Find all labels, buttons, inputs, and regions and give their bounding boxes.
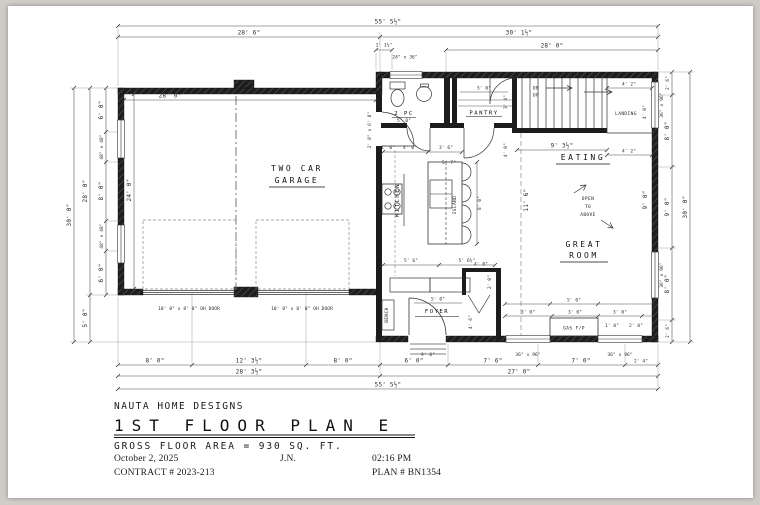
garage: 28' 0" 24' 0" TWO CAR GARAGE 10' 0" x 8'… [122,92,414,312]
dim-kit-b: 4' 0" [403,145,417,151]
room-label-pantry: PANTRY [469,111,498,117]
dim-kit-a: 1' 0" [381,145,395,151]
dim-powder-width: 5' 0" [397,118,411,124]
dim-gr-w: 5' 0" [567,298,581,304]
dim-closet-width: 4' 0" [474,262,488,268]
dim-bot-b: 12' 3½" [236,358,263,365]
window-label-36x96-right-upper: 36" x 96" [659,92,665,117]
open-to-above-2: TO [585,204,591,210]
garage-entry-door-swing [382,112,414,146]
window-label-48x48-upper: 48" x 48" [99,134,105,159]
open-to-above-3: ABOVE [580,212,596,218]
island-stools [462,163,471,244]
dim-kit-f: 5' 6½" [459,257,476,264]
room-label-foyer: FOYER [425,309,449,315]
man-door-label: 2' 8" x 6' 8" [367,112,373,149]
staircase: DN UP LANDING 9' 3½" 4' 2" 4' 2" 4' 0" [515,78,654,157]
room-label-kitchen: KITCHEN [395,183,401,217]
dim-top-jog: 1' 1½" [376,42,393,49]
toilet-bowl [391,90,404,107]
dim-porch: 9' 0" [421,352,435,358]
dim-foyer-width: 5' 0" [431,297,445,303]
dim-landing-a: 4' 2" [622,82,636,88]
dim-bot-left: 28' 3½" [236,369,263,376]
plan-number: PLAN # BN1354 [372,468,441,478]
dim-bot-g: 2' 4" [634,359,648,365]
oh-door-label-left: 10' 0" x 8' 0" OH DOOR [158,306,220,312]
room-label-garage-1: TWO CAR [271,164,323,173]
room-label-powder: 2 PC [394,111,413,117]
dim-garage-height: 24' 0" [126,179,133,202]
dim-right-seg-b: 8' 0" [664,121,671,140]
window-label-36x96-bottom-right: 36" x 96" [607,352,632,358]
dim-top-total: 55' 5½" [375,19,402,26]
room-label-great-1: GREAT [565,240,602,249]
dim-left-seg-c: 6' 0" [98,263,105,282]
dim-left-seg-b: 8' 0" [98,181,105,200]
dim-gr-b: 3' 0" [568,310,582,316]
dim-left-lower: 5' 0" [82,308,89,327]
dim-top-right: 30' 1½" [506,30,533,37]
initials: J.N. [280,454,296,464]
contract-number: CONTRACT # 2023-213 [114,468,215,478]
time: 02:16 PM [372,454,412,464]
dim-gr-e: 2' 0" [629,323,643,329]
dim-great-right: 9' 0" [642,190,649,209]
dim-left-outer: 30' 0" [66,204,73,227]
dim-hall-depth: 4' 0" [503,143,509,157]
oh-door-track-right [256,220,349,289]
bench-label: BENCH [384,307,390,323]
dim-bot-right: 27' 0" [508,369,531,376]
dim-kit-d: 8' 0" [477,196,483,210]
dim-right-seg-e: 2' 6" [665,324,671,338]
dim-bot-a: 8' 0" [145,358,164,365]
dim-top-left: 28' 6" [238,30,261,37]
dim-pantry-width: 5' 0" [477,86,491,92]
open-to-above-1: OPEN [582,196,594,202]
dim-bot-d: 6' 0" [404,358,423,365]
drawing-title: 1ST FLOOR PLAN E [114,416,396,435]
dim-great-depth: 11' 6" [523,189,530,212]
dim-bot-c: 8' 0" [333,358,352,365]
room-label-garage-2: GARAGE [275,176,320,185]
dim-right-seg-c: 9' 0" [664,197,671,216]
dim-left-seg-a: 6' 0" [98,100,105,119]
date: October 2, 2025 [114,454,179,464]
dim-right-seg-a: 2' 6" [665,76,671,90]
island-label: ISLAND [452,196,458,215]
dim-stair-run: 9' 3½" [551,143,574,150]
title-block: NAUTA HOME DESIGNS 1ST FLOOR PLAN E GROS… [114,401,441,478]
lower-cabinet-left [390,278,430,292]
floor-plan-drawing: 55' 5½" 28' 6" 30' 1½" 1' 1½" 28' 0" 24"… [0,0,760,505]
dim-bot-total: 55' 5½" [375,382,402,389]
room-label-landing: LANDING [615,111,637,117]
dim-landing-width: 4' 0" [642,105,648,119]
window-label-36x96-right-lower: 36" x 96" [659,262,665,287]
great-room: EATING OPEN TO ABOVE GREAT ROOM 11' 6" 9… [503,133,657,336]
dim-pantry-depth: 3' 4" [503,95,509,109]
dim-left-upper: 28' 0" [82,180,89,203]
dim-gr-d: 1' 0" [605,323,619,329]
dim-closet-depth: 2' 0" [487,275,493,289]
dim-kit-c: 3' 6" [439,145,453,151]
window-label-48x48-lower: 48" x 48" [99,223,105,248]
dimension-lines-left: 30' 0" 28' 0" 5' 0" 6' 0" 48" x 48" 8' 0… [66,86,376,344]
open-to-above-arrows [574,185,613,228]
window-label-36x96-bottom-left: 36" x 96" [515,352,540,358]
oh-door-track-left [143,220,236,289]
dim-right-outer: 30' 0" [682,196,689,219]
stair-label-up: UP [533,93,539,99]
oh-door-label-right: 10' 0" x 8' 0" OH DOOR [271,306,333,312]
window-label-24x36: 24" x 36" [392,55,417,61]
closet-bifold-doors [468,295,490,313]
toilet-tank [390,82,405,89]
dim-hall-width: 5' 7" [442,160,456,166]
kitchen-island: ISLAND [428,162,471,244]
dim-bot-f: 7' 0" [571,358,590,365]
dim-garage-width: 28' 0" [159,93,182,100]
dim-landing-b: 4' 2" [622,149,636,155]
powder-room: 2 PC 5' 0" [390,82,432,151]
stair-label-dn: DN [533,86,539,92]
room-label-great-2: ROOM [569,251,599,260]
dim-top-right2: 28' 0" [541,43,564,50]
sink-basin [417,87,432,102]
screenshot-stage: 55' 5½" 28' 6" 30' 1½" 1' 1½" 28' 0" 24"… [0,0,760,505]
dimension-lines-right: 2' 6" 8' 0" 9' 0" 8' 0" 2' 6" 30' 0" 36"… [658,70,694,344]
company-name: NAUTA HOME DESIGNS [114,401,244,412]
pantry-door-swing [464,128,494,158]
gross-area: GROSS FLOOR AREA = 930 SQ. FT. [114,441,343,452]
gas-fireplace-label: GAS F/P [563,326,585,332]
dim-foyer-depth: 4' 6" [468,315,474,329]
dim-gr-a: 3' 0" [521,310,535,316]
dim-bot-e: 7' 6" [483,358,502,365]
dim-kit-e: 5' 6" [404,258,418,264]
dim-gr-c: 3' 0" [613,310,627,316]
dim-right-seg-d: 8' 0" [664,274,671,293]
room-label-eating: EATING [561,153,606,162]
